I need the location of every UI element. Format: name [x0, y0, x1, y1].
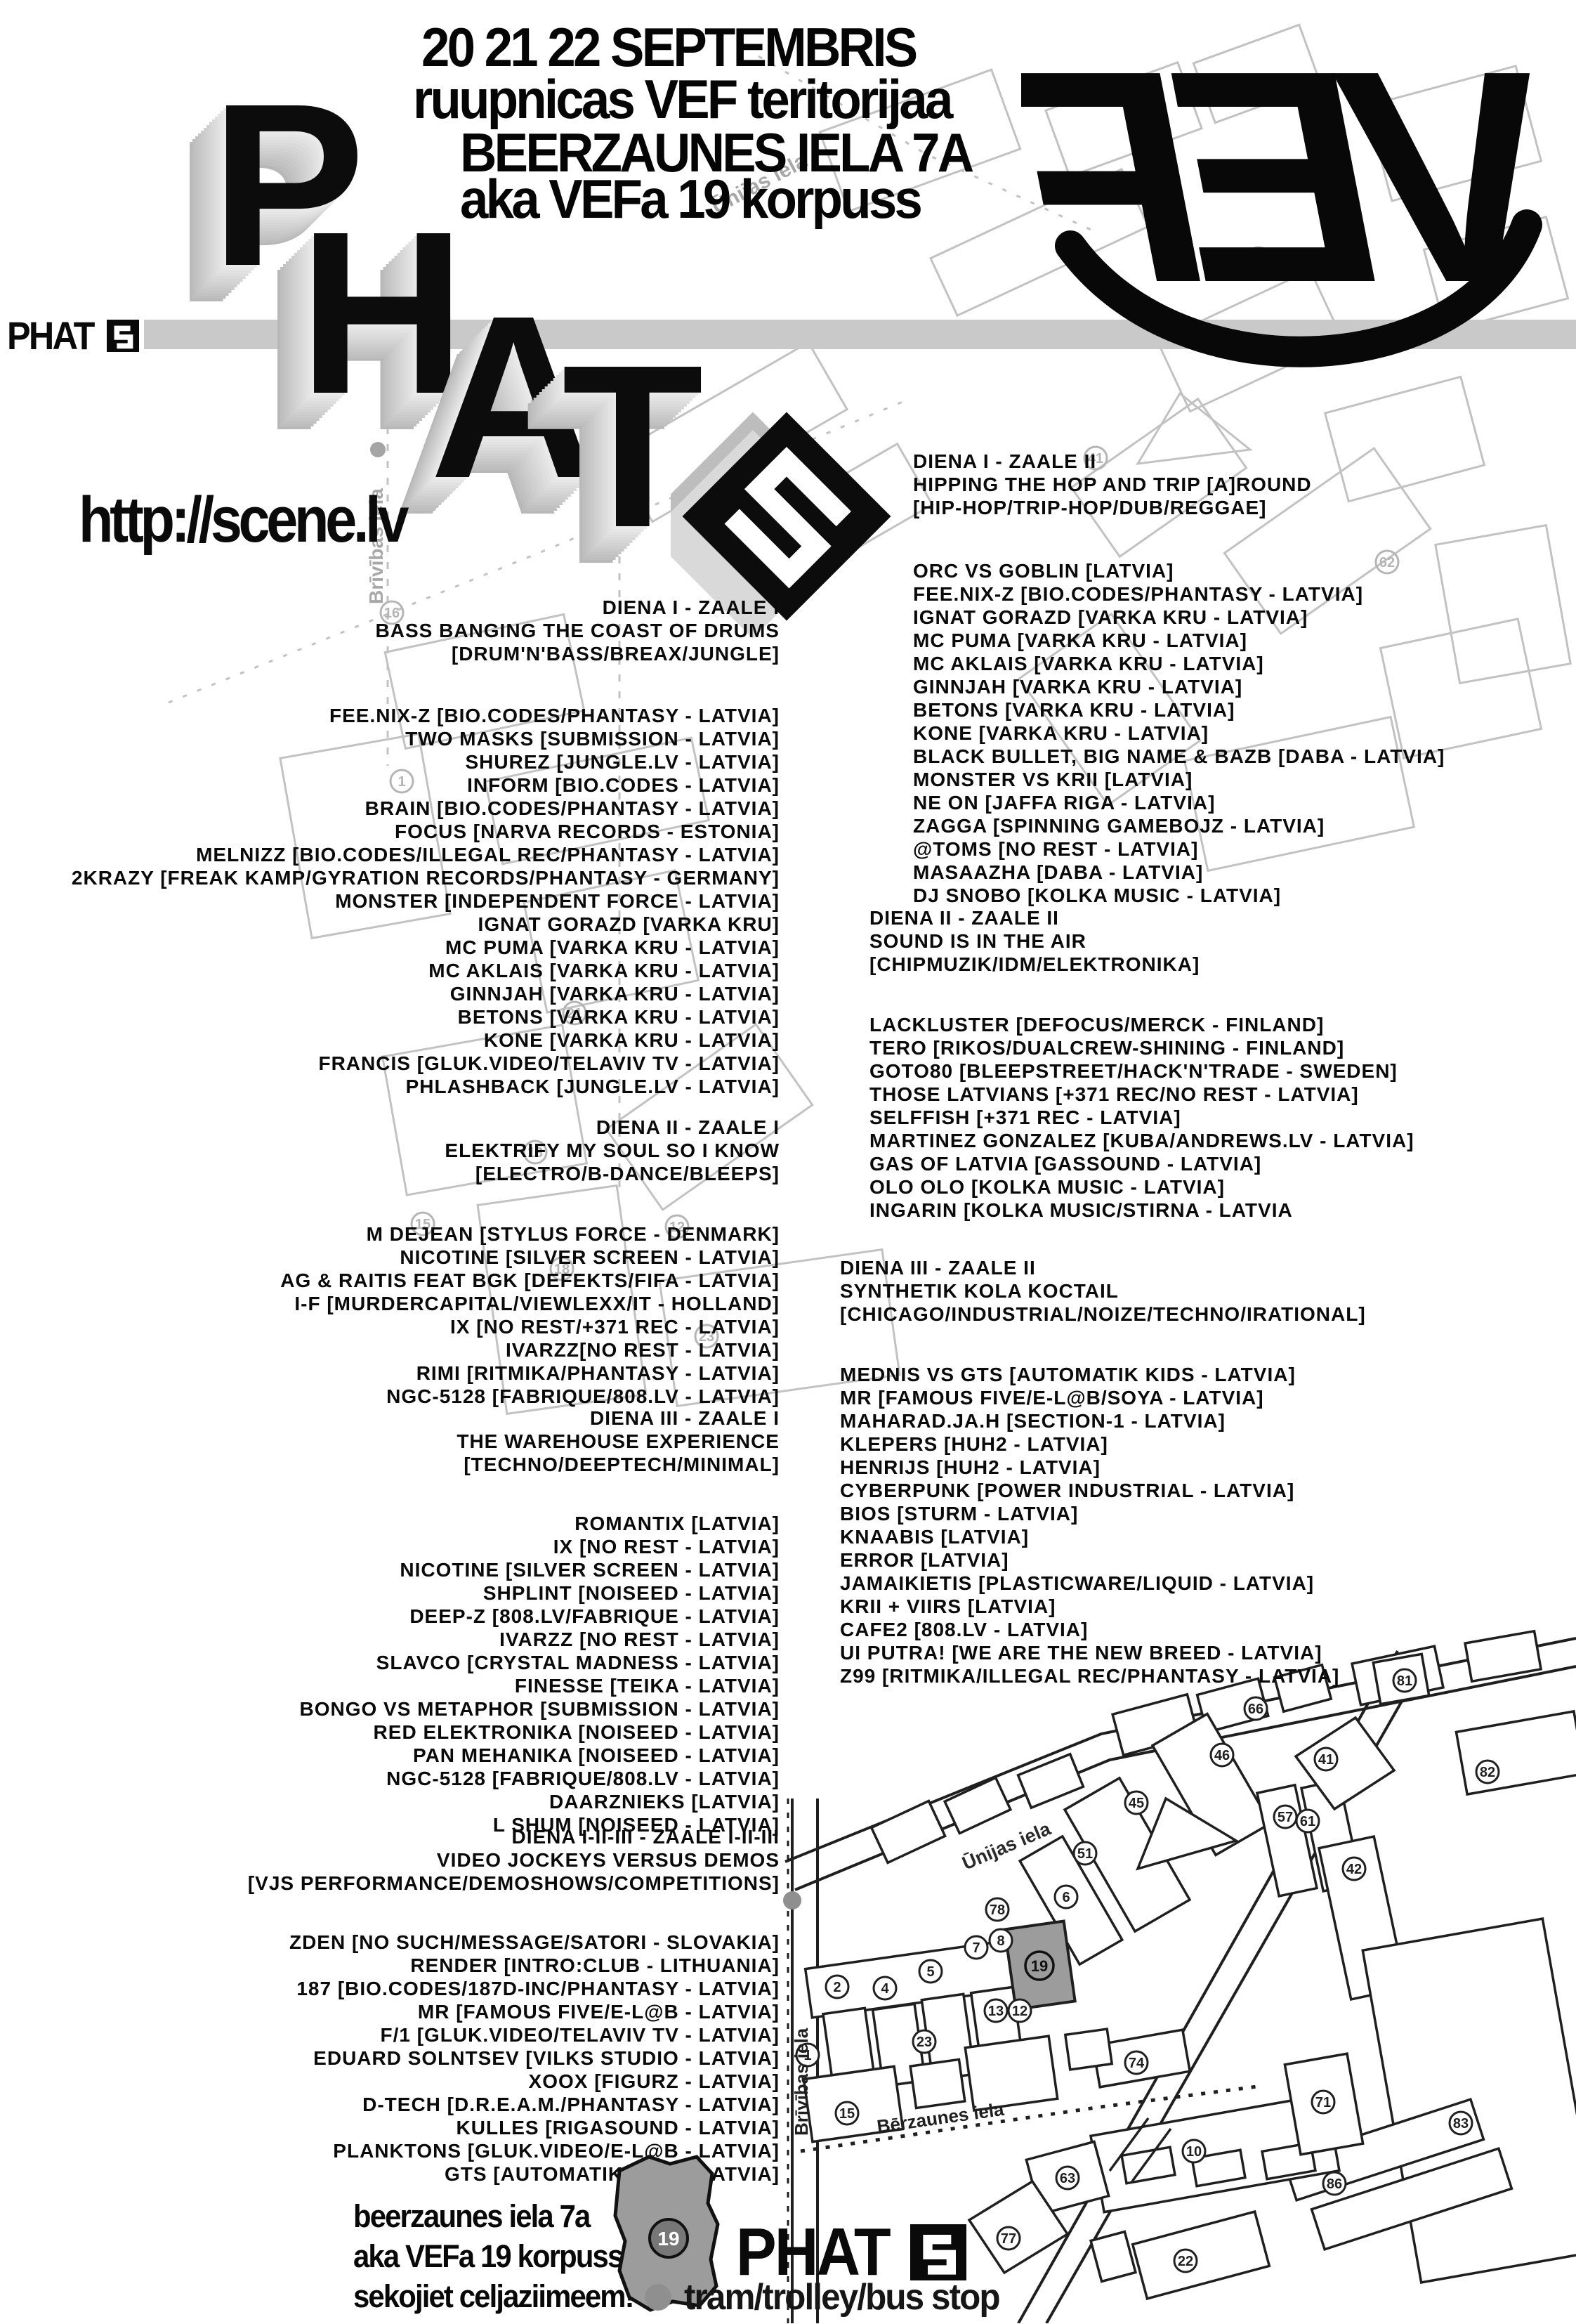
svg-text:10: 10 — [1186, 2144, 1202, 2160]
artist-line: IX [NO REST/+371 REC - LATVIA] — [7, 1315, 780, 1338]
artist-line: SHPLINT [NOISEED - LATVIA] — [7, 1581, 780, 1605]
artist-line: BONGO VS METAPHOR [SUBMISSION - LATVIA] — [7, 1697, 780, 1721]
artist-line: UI PUTRA! [WE ARE THE NEW BREED - LATVIA… — [840, 1641, 1576, 1664]
section-venue: DIENA II - ZAALE II — [869, 906, 1576, 929]
svg-text:23: 23 — [917, 2035, 932, 2050]
artist-line: FRANCIS [GLUK.VIDEO/TELAVIV TV - LATVIA] — [7, 1052, 780, 1075]
artist-line: MONSTER [INDEPENDENT FORCE - LATVIA] — [7, 889, 780, 913]
artist-line: AG & RAITIS FEAT BGK [DEFEKTS/FIFA - LAT… — [7, 1269, 780, 1292]
artist-list-vjs: ZDEN [NO SUCH/MESSAGE/SATORI - SLOVAKIA]… — [0, 1931, 780, 2186]
section-header-day3-hall2: DIENA III - ZAALE II SYNTHETIK KOLA KOCT… — [840, 1256, 1576, 1326]
artist-line: INGARIN [KOLKA MUSIC/STIRNA - LATVIA — [869, 1199, 1576, 1222]
artist-line: F/1 [GLUK.VIDEO/TELAVIV TV - LATVIA] — [0, 2023, 780, 2046]
svg-text:13: 13 — [988, 2004, 1004, 2019]
artist-line: Z99 [RITMIKA/ILLEGAL REC/PHANTASY - LATV… — [840, 1664, 1576, 1687]
artist-line: MC AKLAIS [VARKA KRU - LATVIA] — [7, 959, 780, 982]
artist-line: ZAGGA [SPINNING GAMEBOJZ - LATVIA] — [913, 814, 1576, 837]
artist-line: GINNJAH [VARKA KRU - LATVIA] — [913, 675, 1576, 698]
section-genres: [VJS PERFORMANCE/DEMOSHOWS/COMPETITIONS] — [0, 1872, 780, 1895]
artist-line: JAMAIKIETIS [PLASTICWARE/LIQUID - LATVIA… — [840, 1572, 1576, 1595]
artist-line: NICOTINE [SILVER SCREEN - LATVIA] — [7, 1246, 780, 1269]
artist-line: ROMANTIX [LATVIA] — [7, 1512, 780, 1535]
artist-line: DAARZNIEKS [LATVIA] — [7, 1790, 780, 1813]
artist-line: MC PUMA [VARKA KRU - LATVIA] — [7, 936, 780, 959]
artist-list-day2-hall1: M DEJEAN [STYLUS FORCE - DENMARK]NICOTIN… — [7, 1222, 780, 1408]
artist-line: @TOMS [NO REST - LATVIA] — [913, 837, 1576, 861]
phat-logo-text: PHAT — [7, 316, 93, 355]
section-header-day1-hall1: DIENA I - ZAALE I BASS BANGING THE COAST… — [7, 596, 780, 665]
svg-text:83: 83 — [1453, 2116, 1469, 2132]
svg-text:12: 12 — [1012, 2004, 1027, 2019]
scene-lv-link[interactable]: http://scene.lv — [79, 483, 405, 557]
artist-line: PAN MEHANIKA [NOISEED - LATVIA] — [7, 1744, 780, 1767]
artist-list-day1-hall1: FEE.NIX-Z [BIO.CODES/PHANTASY - LATVIA]T… — [7, 704, 780, 1098]
artist-line: KRII + VIIRS [LATVIA] — [840, 1595, 1576, 1618]
artist-line: D-TECH [D.R.E.A.M./PHANTASY - LATVIA] — [0, 2093, 780, 2116]
artist-line: MELNIZZ [BIO.CODES/ILLEGAL REC/PHANTASY … — [7, 843, 780, 866]
artist-line: FOCUS [NARVA RECORDS - ESTONIA] — [7, 820, 780, 843]
artist-line: MEDNIS VS GTS [AUTOMATIK KIDS - LATVIA] — [840, 1363, 1576, 1386]
legend-label: tram/trolley/bus stop — [684, 2276, 999, 2318]
footer-address-line: aka VEFa 19 korpuss — [353, 2236, 633, 2276]
artist-line: IGNAT GORAZD [VARKA KRU] — [7, 913, 780, 936]
artist-line: SHUREZ [JUNGLE.LV - LATVIA] — [7, 750, 780, 773]
artist-line: KNAABIS [LATVIA] — [840, 1525, 1576, 1548]
artist-line: EDUARD SOLNTSEV [VILKS STUDIO - LATVIA] — [0, 2046, 780, 2070]
artist-line: RENDER [INTRO:CLUB - LITHUANIA] — [0, 1954, 780, 1977]
stop-dot-icon — [645, 2284, 671, 2311]
artist-line: CYBERPUNK [POWER INDUSTRIAL - LATVIA] — [840, 1479, 1576, 1502]
artist-line: KONE [VARKA KRU - LATVIA] — [7, 1029, 780, 1052]
artist-line: THOSE LATVIANS [+371 REC/NO REST - LATVI… — [869, 1083, 1576, 1106]
phat-2-square-icon — [910, 2224, 966, 2280]
artist-line: GOTO80 [BLEEPSTREET/HACK'N'TRADE - SWEDE… — [869, 1059, 1576, 1083]
section-venue: DIENA I - ZAALE I — [7, 596, 780, 619]
artist-line: BETONS [VARKA KRU - LATVIA] — [7, 1005, 780, 1029]
svg-text:46: 46 — [1214, 1748, 1230, 1763]
artist-line: TERO [RIKOS/DUALCREW-SHINING - FINLAND] — [869, 1036, 1576, 1059]
artist-line: BETONS [VARKA KRU - LATVIA] — [913, 698, 1576, 722]
artist-line: CAFE2 [808.LV - LATVIA] — [840, 1618, 1576, 1641]
section-header-day3-hall1: DIENA III - ZAALE I THE WAREHOUSE EXPERI… — [7, 1406, 780, 1476]
svg-text:77: 77 — [1001, 2231, 1016, 2247]
svg-text:66: 66 — [1248, 1702, 1263, 1717]
header-location: ruupnicas VEF teritorijaa — [413, 72, 951, 126]
svg-text:71: 71 — [1315, 2095, 1331, 2110]
artist-list-day2-hall2: LACKLUSTER [DEFOCUS/MERCK - FINLAND]TERO… — [869, 1013, 1576, 1222]
artist-line: KLEPERS [HUH2 - LATVIA] — [840, 1432, 1576, 1456]
section-venue: DIENA III - ZAALE I — [7, 1406, 780, 1430]
svg-text:7: 7 — [972, 1940, 980, 1956]
artist-line: 2KRAZY [FREAK KAMP/GYRATION RECORDS/PHAN… — [7, 866, 780, 889]
section-genres: [CHIPMUZIK/IDM/ELEKTRONIKA] — [869, 953, 1576, 976]
section-venue: DIENA I - ZAALE II — [913, 450, 1576, 473]
section-header-day2-hall2: DIENA II - ZAALE II SOUND IS IN THE AIR … — [869, 906, 1576, 976]
artist-line: NE ON [JAFFA RIGA - LATVIA] — [913, 791, 1576, 814]
svg-text:42: 42 — [1346, 1862, 1362, 1877]
section-genres: [HIP-HOP/TRIP-HOP/DUB/REGGAE] — [913, 496, 1576, 519]
tram-stop-dot-faint — [370, 442, 386, 457]
section-genres: [CHICAGO/INDUSTRIAL/NOIZE/TECHNO/IRATION… — [840, 1303, 1576, 1326]
svg-text:41: 41 — [1318, 1752, 1334, 1768]
artist-line: TWO MASKS [SUBMISSION - LATVIA] — [7, 727, 780, 750]
section-venue: DIENA I-II-III - ZAALE I-II-III — [0, 1825, 780, 1848]
section-title: ELEKTRIFY MY SOUL SO I KNOW — [7, 1139, 780, 1162]
svg-text:51: 51 — [1077, 1846, 1093, 1862]
section-title: THE WAREHOUSE EXPERIENCE — [7, 1430, 780, 1453]
phat-2-square-icon — [107, 320, 139, 352]
artist-line: I-F [MURDERCAPITAL/VIEWLEXX/IT - HOLLAND… — [7, 1292, 780, 1315]
artist-line: NGC-5128 [FABRIQUE/808.LV - LATVIA] — [7, 1385, 780, 1408]
section-title: SOUND IS IN THE AIR — [869, 929, 1576, 953]
artist-line: MR [FAMOUS FIVE/E-L@B/SOYA - LATVIA] — [840, 1386, 1576, 1409]
artist-line: HENRIJS [HUH2 - LATVIA] — [840, 1456, 1576, 1479]
artist-line: IX [NO REST - LATVIA] — [7, 1535, 780, 1558]
artist-line: MASAAZHA [DABA - LATVIA] — [913, 861, 1576, 884]
artist-line: PHLASHBACK [JUNGLE.LV - LATVIA] — [7, 1075, 780, 1098]
svg-text:45: 45 — [1129, 1796, 1144, 1811]
footer-address: beerzaunes iela 7a aka VEFa 19 korpuss s… — [353, 2196, 633, 2316]
svg-text:5: 5 — [926, 1964, 934, 1980]
artist-line: IGNAT GORAZD [VARKA KRU - LATVIA] — [913, 606, 1576, 629]
svg-text:4: 4 — [881, 1981, 889, 1997]
artist-line: INFORM [BIO.CODES - LATVIA] — [7, 773, 780, 797]
svg-text:82: 82 — [1480, 1765, 1495, 1780]
artist-list-day3-hall1: ROMANTIX [LATVIA]IX [NO REST - LATVIA]NI… — [7, 1512, 780, 1836]
section-venue: DIENA II - ZAALE I — [7, 1116, 780, 1139]
artist-line: DJ SNOBO [KOLKA MUSIC - LATVIA] — [913, 884, 1576, 907]
section-header-day1-hall2: DIENA I - ZAALE II HIPPING THE HOP AND T… — [913, 450, 1576, 519]
artist-line: XOOX [FIGURZ - LATVIA] — [0, 2070, 780, 2093]
vef-script-logo-mirrored: VEF — [1021, 0, 1576, 400]
street-label-brivibas: Brīvības iela — [791, 2028, 812, 2136]
poster: { "branding": { "logo_text": "PHAT", "lo… — [0, 0, 1576, 2323]
map-dark-buildings — [803, 1631, 1576, 2299]
svg-text:15: 15 — [839, 2106, 855, 2122]
artist-line: NICOTINE [SILVER SCREEN - LATVIA] — [7, 1558, 780, 1581]
section-title: BASS BANGING THE COAST OF DRUMS — [7, 619, 780, 642]
svg-text:78: 78 — [990, 1902, 1005, 1918]
svg-text:61: 61 — [1300, 1814, 1315, 1829]
svg-text:19: 19 — [657, 2228, 679, 2250]
artist-line: MR [FAMOUS FIVE/E-L@B - LATVIA] — [0, 2000, 780, 2023]
artist-line: KONE [VARKA KRU - LATVIA] — [913, 722, 1576, 745]
header-date: 20 21 22 SEPTEMBRIS — [421, 20, 915, 74]
artist-list-day1-hall2: ORC VS GOBLIN [LATVIA]FEE.NIX-Z [BIO.COD… — [913, 559, 1576, 907]
artist-line: RIMI [RITMIKA/PHANTASY - LATVIA] — [7, 1362, 780, 1385]
artist-line: ZDEN [NO SUCH/MESSAGE/SATORI - SLOVAKIA] — [0, 1931, 780, 1954]
artist-line: MAHARAD.JA.H [SECTION-1 - LATVIA] — [840, 1409, 1576, 1432]
artist-line: RED ELEKTRONIKA [NOISEED - LATVIA] — [7, 1721, 780, 1744]
artist-line: IVARZZ [NO REST - LATVIA] — [7, 1628, 780, 1651]
artist-line: OLO OLO [KOLKA MUSIC - LATVIA] — [869, 1175, 1576, 1199]
tram-stop-dot — [783, 1891, 801, 1910]
footer-address-line: sekojiet celjaziimeem! — [353, 2276, 633, 2316]
section-title: HIPPING THE HOP AND TRIP [A]ROUND — [913, 473, 1576, 496]
artist-line: 187 [BIO.CODES/187D-INC/PHANTASY - LATVI… — [0, 1977, 780, 2000]
artist-line: KULLES [RIGASOUND - LATVIA] — [0, 2116, 780, 2139]
artist-line: MONSTER VS KRII [LATVIA] — [913, 768, 1576, 791]
artist-line: GINNJAH [VARKA KRU - LATVIA] — [7, 982, 780, 1005]
artist-line: BRAIN [BIO.CODES/PHANTASY - LATVIA] — [7, 797, 780, 820]
svg-text:19: 19 — [1031, 1957, 1048, 1975]
section-venue: DIENA III - ZAALE II — [840, 1256, 1576, 1279]
section-title: SYNTHETIK KOLA KOCTAIL — [840, 1279, 1576, 1303]
svg-text:8: 8 — [997, 1933, 1004, 1949]
section-header-vjs: DIENA I-II-III - ZAALE I-II-III VIDEO JO… — [0, 1825, 780, 1895]
section-header-day2-hall1: DIENA II - ZAALE I ELEKTRIFY MY SOUL SO … — [7, 1116, 780, 1185]
section-genres: [DRUM'N'BASS/BREAX/JUNGLE] — [7, 642, 780, 665]
artist-line: DEEP-Z [808.LV/FABRIQUE - LATVIA] — [7, 1605, 780, 1628]
artist-line: FINESSE [TEIKA - LATVIA] — [7, 1674, 780, 1697]
svg-text:57: 57 — [1278, 1810, 1293, 1825]
phat-logo-small: PHAT — [7, 316, 139, 355]
artist-line: M DEJEAN [STYLUS FORCE - DENMARK] — [7, 1222, 780, 1246]
artist-line: FEE.NIX-Z [BIO.CODES/PHANTASY - LATVIA] — [7, 704, 780, 727]
artist-line: LACKLUSTER [DEFOCUS/MERCK - FINLAND] — [869, 1013, 1576, 1036]
header-aka: aka VEFa 19 korpuss — [460, 171, 920, 226]
footer-address-line: beerzaunes iela 7a — [353, 2196, 633, 2236]
svg-text:86: 86 — [1327, 2176, 1342, 2192]
artist-line: MARTINEZ GONZALEZ [KUBA/ANDREWS.LV - LAT… — [869, 1129, 1576, 1152]
artist-line: FEE.NIX-Z [BIO.CODES/PHANTASY - LATVIA] — [913, 582, 1576, 606]
artist-line: GAS OF LATVIA [GASSOUND - LATVIA] — [869, 1152, 1576, 1175]
artist-line: BIOS [STURM - LATVIA] — [840, 1502, 1576, 1525]
svg-text:74: 74 — [1129, 2056, 1145, 2071]
map-building-19-highlight: 19 — [1004, 1921, 1075, 2010]
svg-text:6: 6 — [1062, 1890, 1070, 1905]
artist-line: ORC VS GOBLIN [LATVIA] — [913, 559, 1576, 582]
svg-text:63: 63 — [1060, 2171, 1075, 2186]
svg-text:22: 22 — [1178, 2254, 1193, 2269]
tram-stop-legend: tram/trolley/bus stop — [645, 2276, 1016, 2318]
artist-line: BLACK BULLET, BIG NAME & BAZB [DABA - LA… — [913, 745, 1576, 768]
svg-text:2: 2 — [833, 1980, 841, 1995]
section-title: VIDEO JOCKEYS VERSUS DEMOS — [0, 1848, 780, 1872]
section-genres: [TECHNO/DEEPTECH/MINIMAL] — [7, 1453, 780, 1476]
artist-line: MC PUMA [VARKA KRU - LATVIA] — [913, 629, 1576, 652]
artist-line: IVARZZ[NO REST - LATVIA] — [7, 1338, 780, 1362]
artist-line: ERROR [LATVIA] — [840, 1548, 1576, 1572]
artist-line: SLAVCO [CRYSTAL MADNESS - LATVIA] — [7, 1651, 780, 1674]
artist-line: MC AKLAIS [VARKA KRU - LATVIA] — [913, 652, 1576, 675]
artist-line: SELFFISH [+371 REC - LATVIA] — [869, 1106, 1576, 1129]
artist-list-day3-hall2: MEDNIS VS GTS [AUTOMATIK KIDS - LATVIA]M… — [840, 1363, 1576, 1687]
artist-line: NGC-5128 [FABRIQUE/808.LV - LATVIA] — [7, 1767, 780, 1790]
section-genres: [ELECTRO/B-DANCE/BLEEPS] — [7, 1162, 780, 1185]
